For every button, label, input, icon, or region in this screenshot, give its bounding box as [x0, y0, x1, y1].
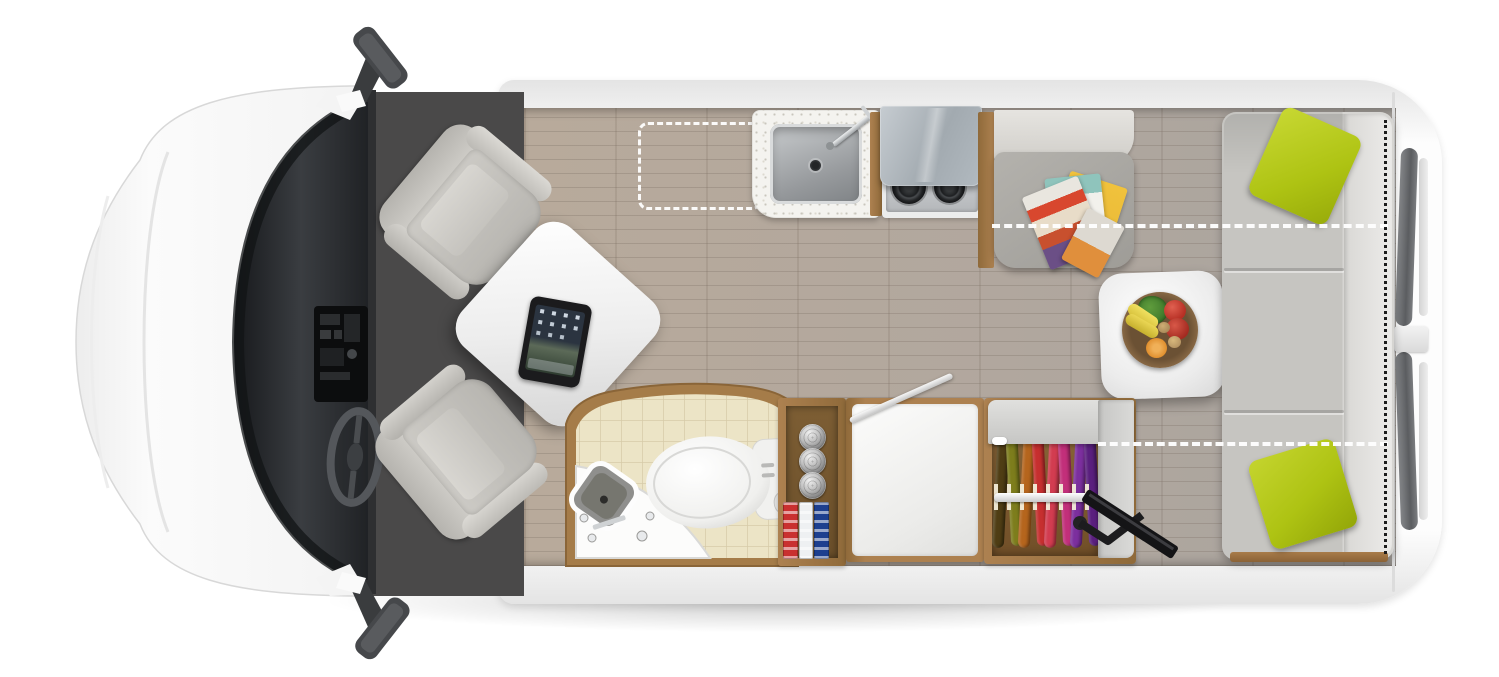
fruit-nut	[1168, 336, 1181, 348]
tablet-dock	[527, 358, 574, 376]
tablet-app-icons	[540, 309, 545, 314]
water-droplet	[588, 534, 596, 542]
rear-door-trim-bottom	[1419, 362, 1428, 520]
bathroom	[558, 378, 808, 578]
wrap-box	[783, 502, 798, 559]
rear-door-split	[1394, 326, 1428, 352]
sink-drain	[810, 160, 821, 171]
stove-lid-sheen	[886, 108, 976, 182]
water-droplet	[637, 531, 647, 541]
water-droplet	[580, 514, 588, 522]
can-icon	[799, 472, 826, 499]
bed-conversion-dashed-line	[1098, 442, 1388, 446]
sofa-wood-base	[1230, 552, 1388, 562]
rv-floorplan-canvas	[0, 0, 1499, 677]
tablet-screen	[525, 304, 586, 378]
wrap-boxes	[783, 502, 829, 559]
wrap-box	[799, 502, 814, 559]
tv-screen-edge	[1089, 493, 1175, 550]
fruit-orange	[1146, 338, 1167, 358]
bed-edge-dotted-line	[1384, 120, 1387, 554]
roof-vent-dashed-outline	[638, 122, 762, 210]
fruit-nut	[1158, 322, 1170, 333]
wardrobe-handle	[992, 437, 1007, 445]
galley-counter-top	[852, 404, 978, 556]
canned-goods	[786, 424, 838, 504]
sofa-cushion-seam	[1224, 268, 1344, 271]
dinette-wood-side	[978, 112, 994, 268]
wrap-box	[814, 502, 829, 559]
sofa-cushion-seam	[1224, 410, 1344, 413]
can-icon	[799, 448, 826, 475]
faucet-spout-tip	[826, 142, 834, 150]
tv-swivel-mount	[1050, 465, 1200, 575]
rear-door-trim-top	[1419, 158, 1428, 316]
dashboard-console	[314, 306, 368, 402]
can-icon	[799, 424, 826, 451]
bed-conversion-dashed-line	[992, 224, 1388, 228]
water-droplet	[646, 512, 654, 520]
